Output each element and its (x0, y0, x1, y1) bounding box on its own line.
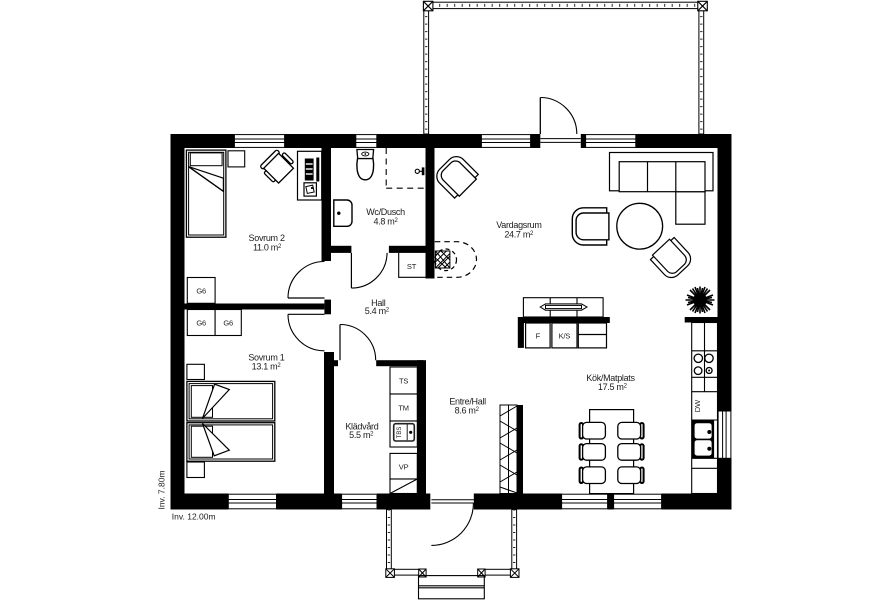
svg-text:TM: TM (398, 404, 408, 413)
svg-text:13.1 m2: 13.1 m2 (252, 362, 282, 372)
svg-text:G6: G6 (223, 319, 233, 328)
svg-text:ST: ST (407, 262, 417, 271)
svg-text:K/S: K/S (559, 332, 571, 341)
svg-text:VP: VP (399, 462, 409, 471)
svg-text:24.7 m2: 24.7 m2 (504, 229, 534, 239)
svg-text:Inv. 12.00m: Inv. 12.00m (172, 512, 216, 522)
svg-text:G6: G6 (196, 287, 206, 296)
svg-text:Inv. 7.80m: Inv. 7.80m (157, 470, 167, 509)
svg-text:11.0 m2: 11.0 m2 (253, 242, 282, 252)
svg-text:DW: DW (693, 399, 702, 412)
svg-text:17.5 m2: 17.5 m2 (598, 382, 628, 392)
svg-text:TS: TS (399, 377, 408, 386)
svg-text:G6: G6 (196, 319, 206, 328)
svg-text:F: F (536, 332, 541, 341)
svg-text:TBS: TBS (397, 427, 403, 439)
